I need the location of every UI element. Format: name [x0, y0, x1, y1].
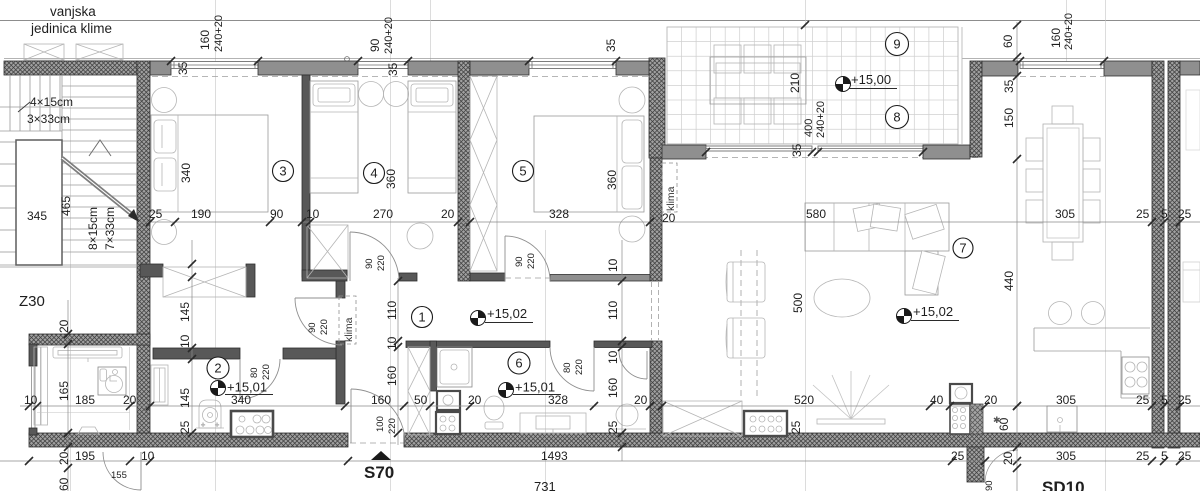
svg-text:580: 580 [806, 207, 826, 221]
svg-text:60: 60 [1001, 34, 1015, 48]
svg-text:1: 1 [418, 310, 425, 325]
svg-text:270: 270 [373, 207, 393, 221]
svg-text:vanjska: vanjska [50, 4, 96, 19]
svg-text:150: 150 [1002, 108, 1016, 128]
svg-text:25: 25 [1178, 207, 1192, 221]
svg-text:90: 90 [307, 322, 318, 333]
svg-text:90: 90 [984, 480, 995, 491]
svg-text:7×33cm: 7×33cm [103, 207, 117, 250]
svg-text:1493: 1493 [541, 449, 568, 463]
svg-text:165: 165 [57, 381, 71, 401]
svg-text:80: 80 [249, 367, 260, 378]
svg-text:240+20: 240+20 [815, 101, 827, 138]
svg-text:25: 25 [1178, 449, 1192, 463]
svg-text:145: 145 [178, 388, 192, 408]
svg-text:10: 10 [141, 449, 155, 463]
svg-text:155: 155 [111, 470, 127, 481]
svg-text:220: 220 [319, 319, 330, 335]
svg-text:10: 10 [606, 350, 620, 364]
svg-text:25: 25 [1136, 449, 1150, 463]
svg-text:25: 25 [178, 420, 192, 434]
svg-text:20: 20 [57, 319, 71, 333]
svg-text:6: 6 [515, 356, 522, 371]
svg-text:328: 328 [548, 393, 568, 407]
svg-text:160: 160 [371, 393, 391, 407]
svg-text:240+20: 240+20 [213, 15, 225, 52]
svg-text:4: 4 [370, 166, 377, 181]
svg-text:3: 3 [279, 164, 286, 179]
svg-text:+15,00: +15,00 [851, 72, 891, 87]
svg-text:10: 10 [178, 334, 192, 348]
svg-text:5: 5 [1161, 449, 1168, 463]
svg-text:20: 20 [662, 211, 676, 225]
svg-text:35: 35 [386, 62, 400, 76]
svg-text:+: + [215, 422, 219, 429]
svg-text:klima: klima [343, 317, 355, 342]
svg-text:7: 7 [959, 241, 966, 256]
svg-text:25: 25 [789, 420, 803, 434]
svg-text:160: 160 [385, 366, 399, 386]
svg-text:305: 305 [1056, 393, 1076, 407]
svg-text:5: 5 [519, 164, 526, 179]
svg-text:190: 190 [191, 207, 211, 221]
svg-text:S70: S70 [364, 463, 394, 482]
svg-text:4×15cm: 4×15cm [30, 95, 73, 109]
svg-text:305: 305 [1056, 449, 1076, 463]
svg-text:90: 90 [270, 207, 284, 221]
svg-text:220: 220 [387, 418, 398, 434]
svg-text:25: 25 [606, 420, 620, 434]
svg-text:20: 20 [1001, 451, 1015, 465]
svg-text:145: 145 [178, 302, 192, 322]
svg-text:50: 50 [414, 393, 428, 407]
svg-text:25: 25 [1136, 393, 1150, 407]
svg-text:20: 20 [468, 393, 482, 407]
svg-text:10: 10 [24, 393, 38, 407]
svg-text:10: 10 [385, 336, 399, 350]
svg-text:440: 440 [1002, 271, 1016, 291]
svg-text:520: 520 [794, 393, 814, 407]
svg-text:35: 35 [176, 61, 190, 75]
svg-text:20: 20 [634, 393, 648, 407]
svg-text:731: 731 [534, 479, 556, 491]
svg-text:110: 110 [606, 301, 620, 320]
svg-text:220: 220 [574, 359, 585, 375]
svg-text:345: 345 [27, 209, 47, 223]
svg-text:90: 90 [368, 38, 382, 52]
svg-text:20: 20 [984, 393, 998, 407]
svg-text:110: 110 [385, 301, 399, 320]
svg-text:35: 35 [790, 143, 804, 157]
svg-text:25: 25 [951, 449, 965, 463]
svg-text:10: 10 [306, 207, 320, 221]
svg-text:SD10: SD10 [1042, 478, 1085, 491]
svg-text:195: 195 [75, 449, 95, 463]
svg-text:5: 5 [1161, 393, 1168, 407]
svg-text:60: 60 [57, 477, 71, 491]
svg-text:160: 160 [198, 30, 212, 50]
svg-text:25: 25 [1178, 393, 1192, 407]
svg-text:328: 328 [549, 207, 569, 221]
svg-text:360: 360 [605, 170, 619, 190]
svg-text:360: 360 [384, 169, 398, 189]
svg-text:20: 20 [123, 393, 137, 407]
svg-text:220: 220 [261, 364, 272, 380]
svg-text:9: 9 [893, 37, 900, 52]
svg-text:+: + [201, 422, 205, 429]
svg-text:210: 210 [788, 73, 802, 93]
svg-text:90: 90 [514, 256, 525, 267]
svg-text:25: 25 [149, 207, 163, 221]
svg-text:25: 25 [1136, 207, 1150, 221]
svg-text:340: 340 [179, 163, 193, 183]
svg-text:20: 20 [441, 207, 455, 221]
svg-text:400: 400 [803, 119, 815, 137]
svg-text:100: 100 [375, 416, 386, 432]
svg-text:35: 35 [1002, 79, 1016, 93]
svg-text:2: 2 [214, 361, 221, 376]
svg-text:240+20: 240+20 [383, 17, 395, 54]
svg-text:Z30: Z30 [19, 293, 45, 310]
svg-text:500: 500 [791, 293, 805, 313]
svg-text:40: 40 [930, 393, 944, 407]
svg-text:160: 160 [606, 378, 620, 398]
svg-text:220: 220 [376, 255, 387, 271]
svg-text:20: 20 [57, 451, 71, 465]
svg-text:8: 8 [893, 110, 900, 125]
svg-text:305: 305 [1055, 207, 1075, 221]
svg-text:240+20: 240+20 [1063, 13, 1075, 50]
svg-text:340: 340 [231, 393, 251, 407]
svg-text:+15,02: +15,02 [913, 304, 953, 319]
svg-text:220: 220 [526, 253, 537, 269]
svg-text:465: 465 [59, 196, 73, 216]
svg-text:3×33cm: 3×33cm [27, 112, 70, 126]
svg-text:+15,02: +15,02 [487, 306, 527, 321]
svg-text:10: 10 [606, 258, 620, 272]
svg-text:90: 90 [364, 258, 375, 269]
svg-text:160: 160 [1049, 28, 1063, 48]
svg-text:✱: ✱ [993, 415, 1001, 425]
svg-text:5: 5 [1161, 207, 1168, 221]
svg-text:8×15cm: 8×15cm [86, 207, 100, 250]
svg-text:185: 185 [75, 393, 95, 407]
svg-text:klima: klima [665, 186, 677, 211]
svg-text:80: 80 [562, 362, 573, 373]
svg-text:35: 35 [604, 38, 618, 52]
svg-text:jedinica klime: jedinica klime [30, 21, 112, 36]
